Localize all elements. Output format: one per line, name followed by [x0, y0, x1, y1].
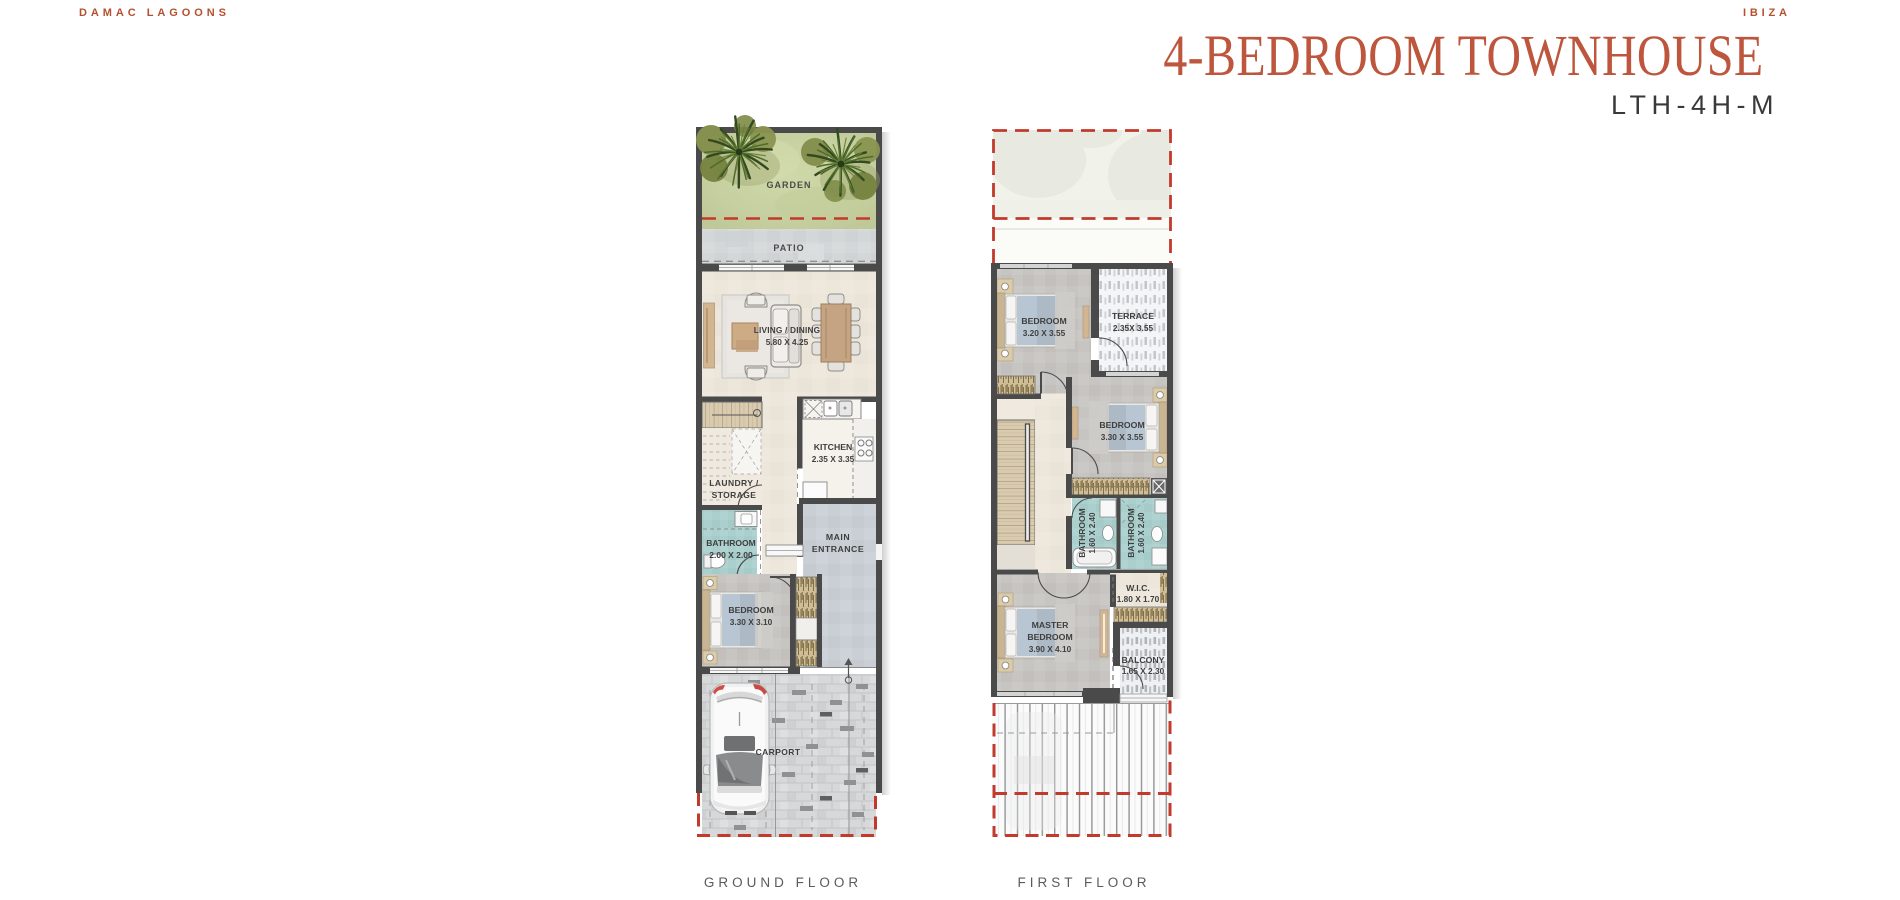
- svg-text:BEDROOM: BEDROOM: [728, 605, 773, 615]
- svg-text:1.80 X 1.70: 1.80 X 1.70: [1117, 594, 1160, 604]
- svg-text:5.80 X 4.25: 5.80 X 4.25: [766, 337, 809, 347]
- svg-text:MASTER: MASTER: [1032, 620, 1069, 630]
- svg-text:BEDROOM: BEDROOM: [1021, 316, 1066, 326]
- svg-text:3.20 X 3.55: 3.20 X 3.55: [1023, 328, 1066, 338]
- svg-text:W.I.C.: W.I.C.: [1126, 583, 1150, 593]
- svg-text:3.90 X 4.10: 3.90 X 4.10: [1029, 644, 1072, 654]
- svg-text:BATHROOM: BATHROOM: [1126, 508, 1136, 557]
- svg-text:MAIN: MAIN: [826, 532, 850, 542]
- svg-text:CARPORT: CARPORT: [756, 747, 801, 757]
- svg-text:LAUNDRY /: LAUNDRY /: [709, 478, 759, 488]
- svg-text:BALCONY: BALCONY: [1122, 655, 1165, 665]
- svg-text:BATHROOM: BATHROOM: [706, 538, 755, 548]
- svg-text:KITCHEN: KITCHEN: [814, 442, 853, 452]
- svg-text:BATHROOM: BATHROOM: [1077, 508, 1087, 557]
- svg-text:3.30 X 3.55: 3.30 X 3.55: [1101, 432, 1144, 442]
- svg-text:PATIO: PATIO: [773, 243, 804, 253]
- svg-text:TERRACE: TERRACE: [1112, 311, 1154, 321]
- svg-text:2.35 X 3.35: 2.35 X 3.35: [812, 454, 855, 464]
- svg-text:STORAGE: STORAGE: [712, 490, 757, 500]
- svg-text:BEDROOM: BEDROOM: [1027, 632, 1072, 642]
- svg-text:1.60 X 2.40: 1.60 X 2.40: [1137, 512, 1146, 553]
- svg-text:1.60 X 2.40: 1.60 X 2.40: [1088, 512, 1097, 553]
- svg-text:BEDROOM: BEDROOM: [1099, 420, 1144, 430]
- svg-text:ENTRANCE: ENTRANCE: [812, 544, 864, 554]
- svg-text:LIVING / DINING: LIVING / DINING: [754, 325, 821, 335]
- svg-text:2.35X 3.55: 2.35X 3.55: [1113, 323, 1154, 333]
- svg-text:3.30 X 3.10: 3.30 X 3.10: [730, 617, 773, 627]
- svg-text:GARDEN: GARDEN: [766, 180, 811, 190]
